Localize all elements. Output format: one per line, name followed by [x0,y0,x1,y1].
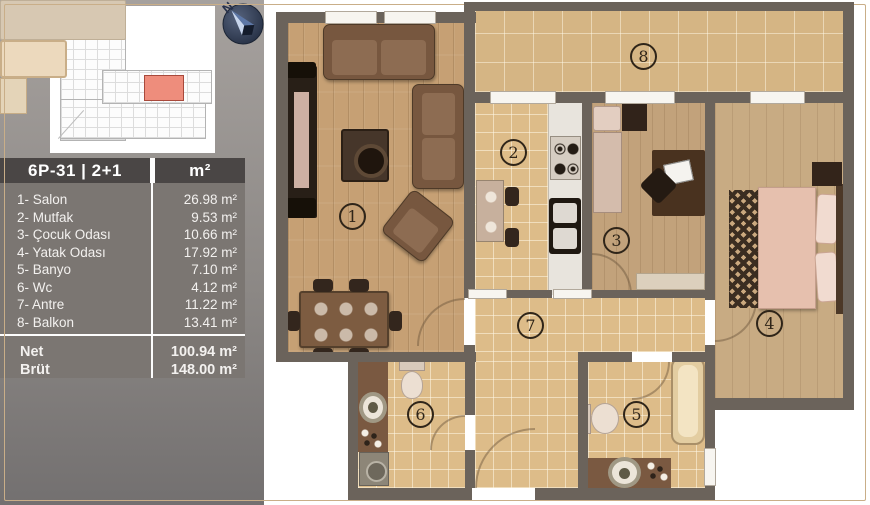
wc-mat [0,40,67,78]
wall-segment [276,12,288,362]
hallway-floor-horizontal [475,298,705,352]
wall-segment [578,352,588,488]
single-bed [593,132,622,213]
wall-segment [705,398,854,410]
room-marker-salon: 1 [339,203,366,230]
room-marker-kitchen: 2 [500,139,527,166]
window [490,91,556,104]
kitchen-chair [505,228,519,247]
window [605,91,675,104]
dining-table [299,291,389,348]
wall-segment [843,2,854,410]
wall-segment [535,488,715,500]
wall-segment [705,103,715,300]
wardrobe [636,273,705,290]
stove [550,136,581,180]
door-threshold [468,289,507,299]
double-bed [758,187,816,309]
room-marker-bedroom: 4 [756,310,783,337]
floorplan-page: N 6P-31 | 2+1 m² 1- Salon 26.98 m² 2- Mu… [0,0,870,505]
wall-segment [464,2,854,11]
bathtub [671,357,705,445]
room-marker-hallway: 7 [517,312,544,339]
nightstand [622,104,647,131]
window [384,11,436,24]
room-marker-kids-room: 3 [603,227,630,254]
slippers [646,461,672,485]
wall-segment [465,362,475,415]
slippers [360,428,386,448]
kitchen-table [476,180,504,242]
wall-segment [582,103,592,290]
wall-segment [464,2,475,298]
toilet-bowl [401,371,423,399]
wall-segment [507,290,552,298]
window [750,91,805,104]
wall-segment [348,488,472,500]
window [704,448,716,486]
wc-sink [359,392,387,423]
wall-segment [276,352,476,362]
wall-segment [465,450,475,488]
nightstand [812,162,842,186]
double-bed-blanket [729,190,758,308]
wall-segment [672,352,715,362]
speaker [286,198,316,218]
coffee-table [341,129,389,182]
sofa-top [323,24,435,80]
washing-machine [359,452,389,486]
wall-segment [578,352,632,362]
wall-segment [592,290,705,298]
window [325,11,377,24]
kitchen-sink [549,198,581,254]
dining-chair [313,279,333,292]
dining-chair [389,311,402,331]
room-marker-balcony: 8 [630,43,657,70]
wall-segment [348,352,358,500]
tv-screen [294,92,309,188]
sofa-right [412,84,464,189]
bathroom-sink [608,457,641,488]
kitchen-chair [505,187,519,206]
wall-segment [464,345,475,362]
door-threshold [553,289,592,299]
dining-chair [287,311,300,331]
apartment-floor-plan: 1 2 3 4 5 6 7 8 [0,0,870,505]
balcony-floor [475,11,843,92]
dining-chair [349,279,369,292]
room-marker-wc: 6 [407,401,434,428]
toilet-bowl [591,403,619,434]
room-marker-bathroom: 5 [623,401,650,428]
single-bed-pillow [593,106,621,131]
speaker [286,62,316,78]
